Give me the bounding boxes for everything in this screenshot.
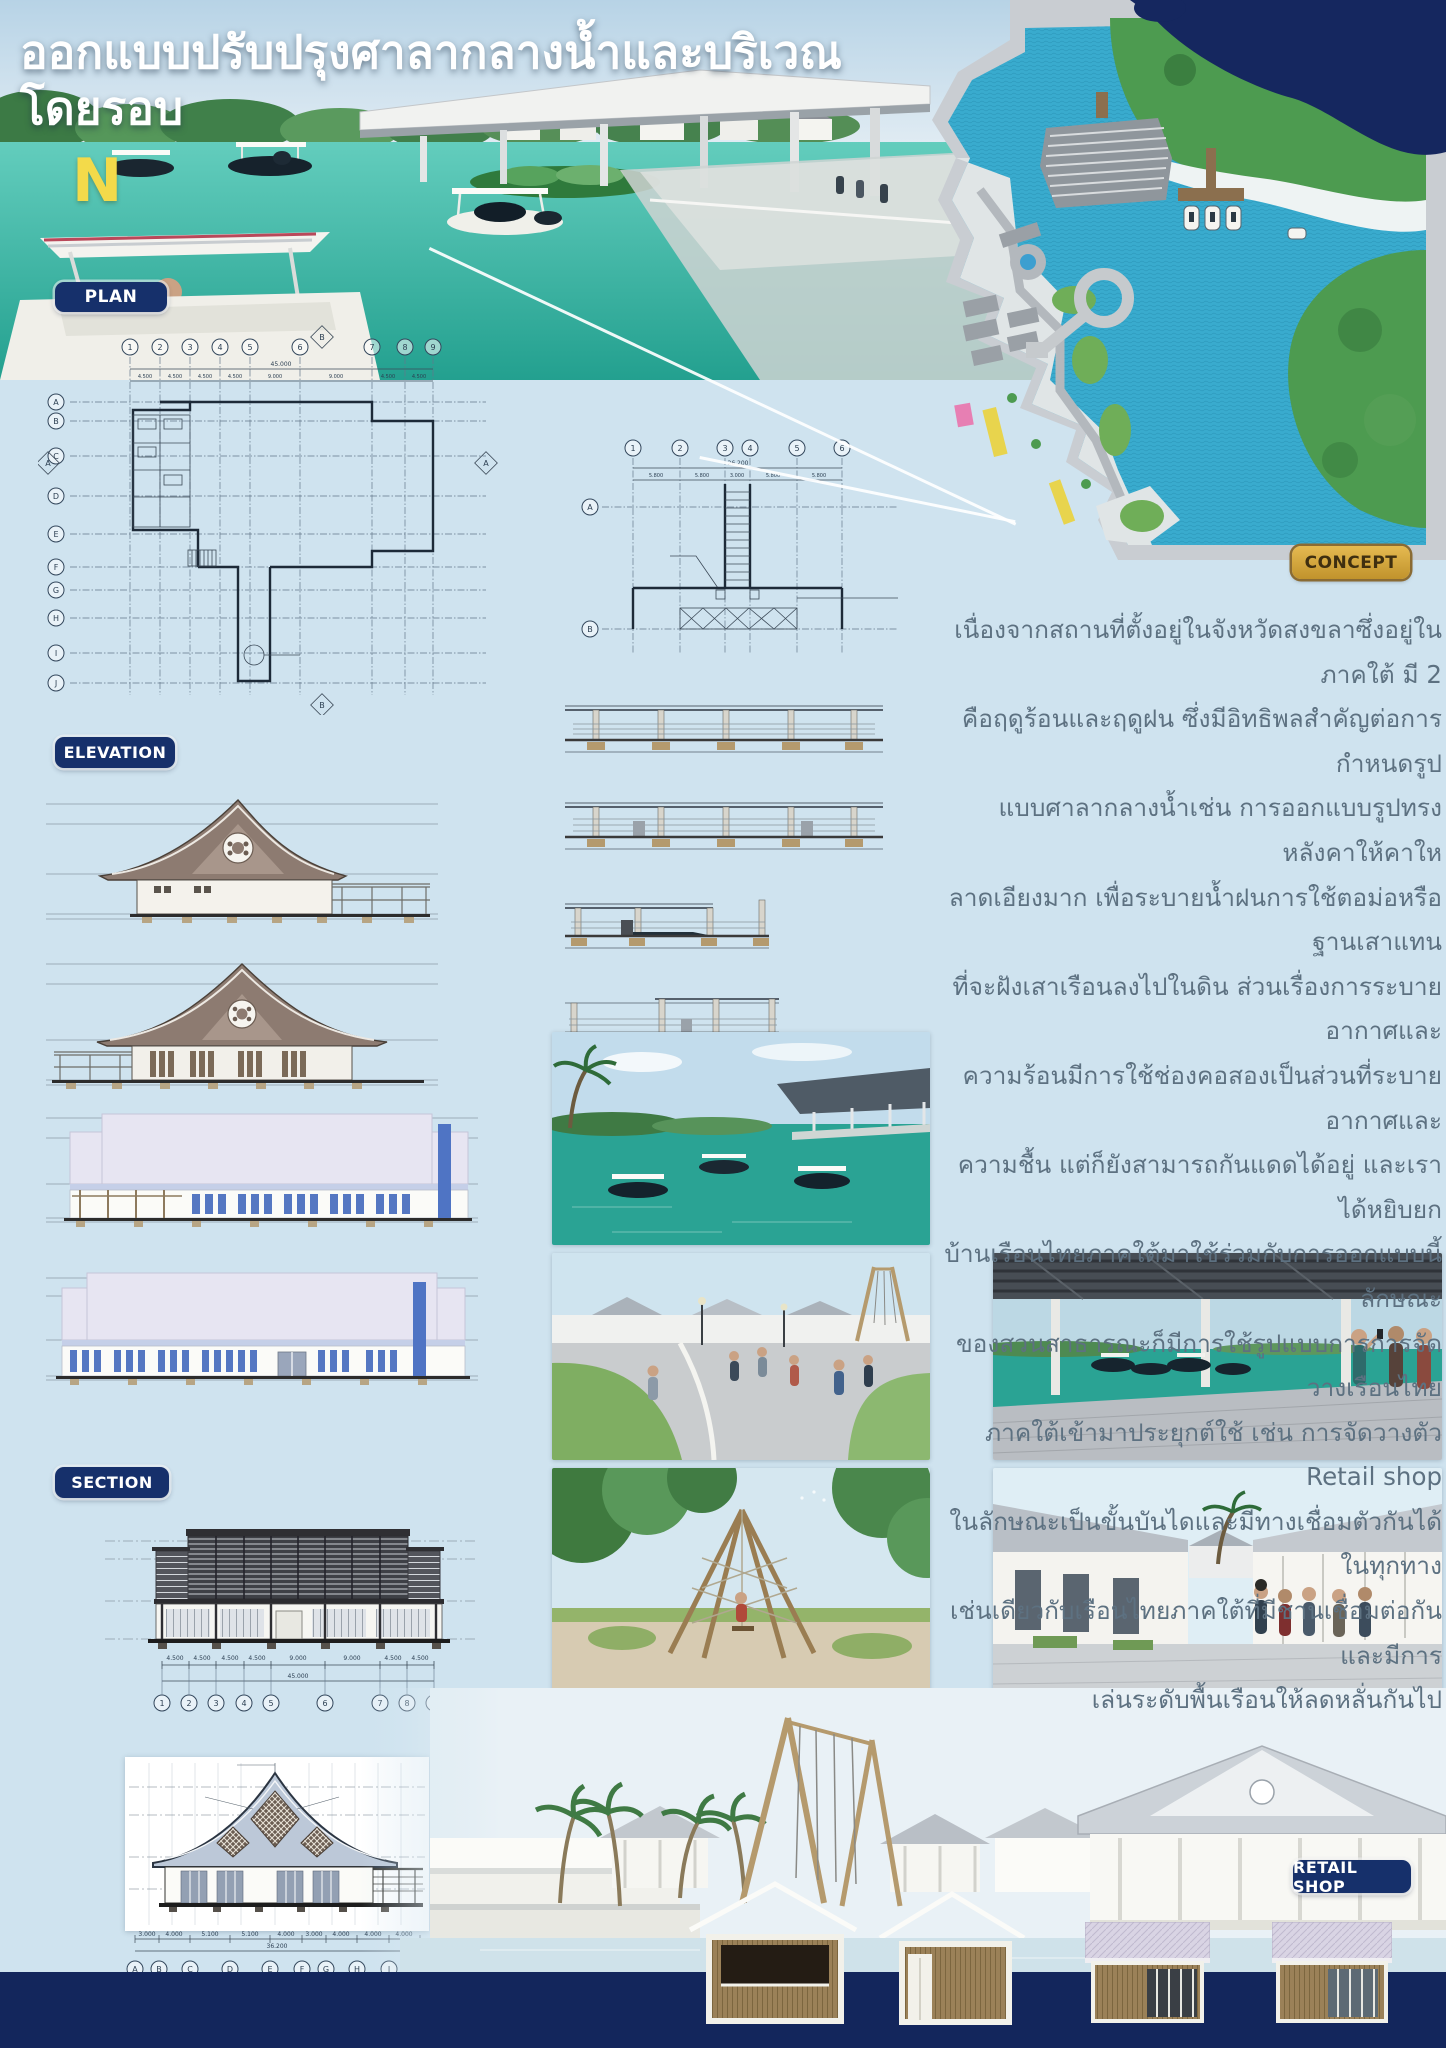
elevation-building-a xyxy=(42,1106,482,1246)
svg-text:4.500: 4.500 xyxy=(381,374,395,380)
concept-line: แบบศาลากลางน้ำเช่น การออกแบบรูปทรงหลังคา… xyxy=(938,786,1442,875)
svg-text:3.000: 3.000 xyxy=(730,473,744,479)
plan-badge-label: PLAN xyxy=(85,287,138,307)
svg-text:G: G xyxy=(53,586,59,595)
retail-shop-badge: RETAIL SHOP xyxy=(1293,1860,1411,1893)
concept-line: บ้านเรือนไทยภาคใต้มาใช้ร่วมกับการออกแบบน… xyxy=(938,1232,1442,1321)
svg-text:5.800: 5.800 xyxy=(812,473,826,479)
svg-text:8: 8 xyxy=(402,343,407,352)
svg-text:9.000: 9.000 xyxy=(289,1655,306,1662)
concept-line: คือฤดูร้อนและฤดูฝน ซึ่งมีอิทธิพลสำคัญต่อ… xyxy=(938,697,1442,786)
plan1-building-outline xyxy=(133,402,433,681)
concept-line: ลาดเอียงมาก เพื่อระบายน้ำฝนการใช้ตอม่อหร… xyxy=(938,876,1442,965)
render-photo-playground xyxy=(552,1468,930,1708)
concept-line: ของสวนสาธารณะก็มีการใช้รูปแบบการการจัดวา… xyxy=(938,1322,1442,1411)
svg-text:J: J xyxy=(54,679,57,688)
render-photo-promenade xyxy=(552,1253,930,1460)
plan1-column-bubbles-top: 1 2 3 4 5 6 7 8 9 xyxy=(122,339,441,355)
svg-text:B: B xyxy=(319,701,325,710)
section1-dimensions: 4.500 4.500 4.500 4.500 9.000 9.000 4.50… xyxy=(162,1655,434,1681)
pergola-right xyxy=(332,884,430,914)
svg-text:9.000: 9.000 xyxy=(343,1655,360,1662)
pergola-left xyxy=(54,1052,132,1080)
concept-line: เช่นเดียวกับเรือนไทยภาคใต้ที่มีชานเชื่อม… xyxy=(938,1589,1442,1678)
concept-paragraph: เนื่องจากสถานที่ตั้งอยู่ในจังหวัดสงขลาซึ… xyxy=(938,608,1442,1723)
plan1-row-bubbles: A B C D E F G H I J xyxy=(48,394,64,691)
concept-badge-label: CONCEPT xyxy=(1305,553,1398,573)
svg-text:B: B xyxy=(319,333,325,342)
elevation-badge-label: ELEVATION xyxy=(64,743,167,762)
svg-text:4: 4 xyxy=(217,343,222,352)
svg-text:4.500: 4.500 xyxy=(411,1655,428,1662)
svg-text:5.800: 5.800 xyxy=(649,473,663,479)
svg-text:4.500: 4.500 xyxy=(198,374,212,380)
concept-line: ความร้อนมีการใช้ช่องคอสองเป็นส่วนที่ระบา… xyxy=(938,1054,1442,1143)
svg-text:4.500: 4.500 xyxy=(412,374,426,380)
svg-text:5: 5 xyxy=(794,444,799,453)
kiosk-elevation-1 xyxy=(705,1933,845,2025)
plan1-section-markers: A A B B xyxy=(38,326,497,715)
plan2-column-bubbles: 1 2 3 4 5 6 A B xyxy=(582,440,850,637)
svg-text:2: 2 xyxy=(157,343,162,352)
walkway-elevation-2 xyxy=(563,795,885,857)
svg-text:5: 5 xyxy=(247,343,252,352)
section-badge: SECTION xyxy=(55,1467,169,1498)
svg-text:A: A xyxy=(483,459,489,468)
svg-text:4.500: 4.500 xyxy=(166,1655,183,1662)
elevation-pavilion-front xyxy=(42,948,442,1098)
svg-text:4.500: 4.500 xyxy=(228,374,242,380)
site-map xyxy=(860,0,1446,560)
svg-text:9: 9 xyxy=(430,343,435,352)
floor-plan-main: 1 2 3 4 5 6 7 8 9 45.000 4.500 4.500 4.5… xyxy=(38,325,498,715)
svg-text:45.000: 45.000 xyxy=(288,1673,309,1680)
kiosk-elevation-4 xyxy=(1272,1922,1392,2025)
svg-text:4.500: 4.500 xyxy=(221,1655,238,1662)
svg-text:E: E xyxy=(53,530,58,539)
svg-text:4.500: 4.500 xyxy=(384,1655,401,1662)
concept-line: ในลักษณะเป็นขั้นบันไดและมีทางเชื่อมตัวกั… xyxy=(938,1500,1442,1589)
render-photo-lake xyxy=(552,1032,930,1245)
svg-text:H: H xyxy=(53,614,59,623)
svg-text:6: 6 xyxy=(297,343,302,352)
elevation-building-b xyxy=(42,1268,482,1403)
svg-text:A: A xyxy=(587,503,593,512)
plan2-stair xyxy=(670,484,759,599)
section-badge-label: SECTION xyxy=(71,1473,153,1492)
concept-line: เล่นระดับพื้นเรือนให้ลดหลั่นกันไป xyxy=(938,1678,1442,1723)
svg-text:D: D xyxy=(53,492,59,501)
kiosk-elevation-3 xyxy=(1085,1922,1210,2025)
svg-text:4.500: 4.500 xyxy=(193,1655,210,1662)
plan2-deck xyxy=(633,588,898,629)
kiosk-elevation-2 xyxy=(898,1940,1013,2026)
svg-text:B: B xyxy=(587,625,593,634)
svg-text:3: 3 xyxy=(722,444,727,453)
svg-text:4.500: 4.500 xyxy=(138,374,152,380)
plan1-stair xyxy=(188,550,216,566)
svg-text:7: 7 xyxy=(369,343,374,352)
svg-text:9.000: 9.000 xyxy=(329,374,343,380)
elevation-pavilion-side xyxy=(42,786,442,936)
svg-text:9.000: 9.000 xyxy=(268,374,282,380)
svg-text:2: 2 xyxy=(677,444,682,453)
walkway-elevation-1 xyxy=(563,698,885,760)
poster-title: ออกแบบปรับปรุงศาลากลางน้ำและบริเวณโดยรอบ xyxy=(20,24,920,136)
svg-text:A: A xyxy=(53,398,59,407)
svg-text:F: F xyxy=(54,563,59,572)
retail-shop-badge-label: RETAIL SHOP xyxy=(1293,1858,1411,1896)
concept-line: ที่จะฝังเสาเรือนลงไปในดิน ส่วนเรื่องการร… xyxy=(938,965,1442,1054)
svg-text:1: 1 xyxy=(127,343,132,352)
concept-line: ความชื้น แต่ก็ยังสามารถกันแดดได้อยู่ และ… xyxy=(938,1143,1442,1232)
svg-text:3: 3 xyxy=(187,343,192,352)
plan1-dimensions: 45.000 4.500 4.500 4.500 4.500 9.000 9.0… xyxy=(130,361,433,381)
svg-text:5.800: 5.800 xyxy=(695,473,709,479)
svg-text:1: 1 xyxy=(630,444,635,453)
concept-line: ภาคใต้เข้ามาประยุกต์ใช้ เช่น การจัดวางตั… xyxy=(938,1411,1442,1500)
elevation-badge: ELEVATION xyxy=(55,737,175,768)
walkway-elevation-3 xyxy=(563,896,773,956)
plan-badge: PLAN xyxy=(55,282,167,312)
compass-north-label: N xyxy=(72,146,122,216)
svg-text:4.500: 4.500 xyxy=(168,374,182,380)
concept-badge: CONCEPT xyxy=(1292,546,1410,579)
svg-text:A: A xyxy=(45,459,51,468)
svg-text:4.500: 4.500 xyxy=(248,1655,265,1662)
svg-text:4: 4 xyxy=(747,444,752,453)
svg-text:B: B xyxy=(53,417,59,426)
svg-text:I: I xyxy=(55,649,57,658)
concept-line: เนื่องจากสถานที่ตั้งอยู่ในจังหวัดสงขลาซึ… xyxy=(938,608,1442,697)
svg-text:45.000: 45.000 xyxy=(271,361,292,368)
presentation-board: ออกแบบปรับปรุงศาลากลางน้ำและบริเวณโดยรอบ… xyxy=(0,0,1446,2048)
